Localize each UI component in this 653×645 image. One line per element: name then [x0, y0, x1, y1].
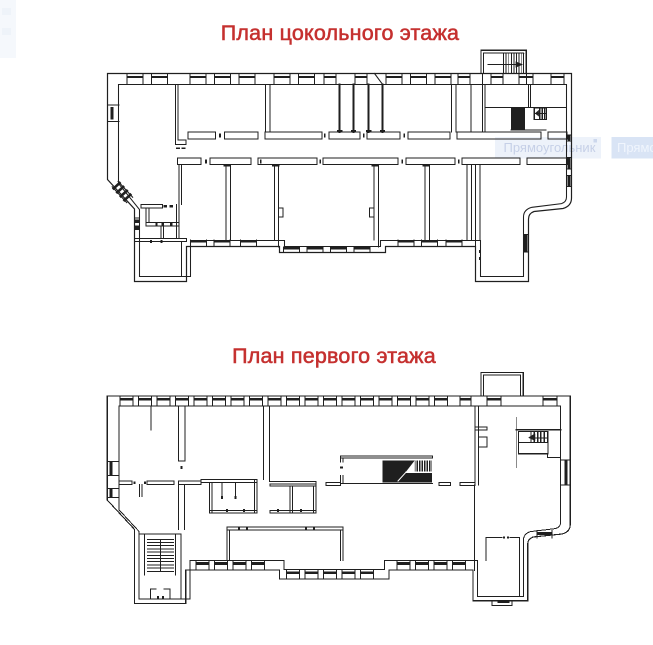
svg-text:План первого этажа: План первого этажа [232, 344, 436, 368]
svg-text:План цокольного этажа: План цокольного этажа [221, 21, 459, 45]
svg-text:Прямоугольник: Прямоугольник [504, 140, 596, 155]
svg-text:Прямоуг: Прямоуг [617, 140, 653, 155]
